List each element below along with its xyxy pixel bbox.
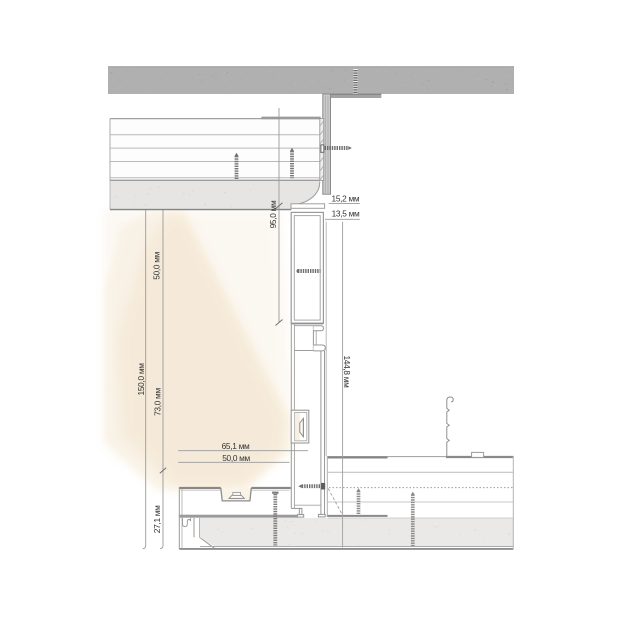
- svg-text:15,2 мм: 15,2 мм: [332, 193, 360, 203]
- svg-text:144,8 мм: 144,8 мм: [342, 355, 352, 388]
- svg-text:150,0 мм: 150,0 мм: [136, 363, 146, 396]
- svg-text:50,0 мм: 50,0 мм: [152, 251, 162, 279]
- svg-text:13,5 мм: 13,5 мм: [332, 209, 360, 219]
- svg-text:73,0 мм: 73,0 мм: [152, 388, 162, 416]
- svg-text:65,1 мм: 65,1 мм: [222, 441, 250, 451]
- svg-text:95,0 мм: 95,0 мм: [268, 200, 278, 228]
- svg-text:27,1 мм: 27,1 мм: [152, 505, 162, 533]
- svg-text:50,0 мм: 50,0 мм: [222, 453, 250, 463]
